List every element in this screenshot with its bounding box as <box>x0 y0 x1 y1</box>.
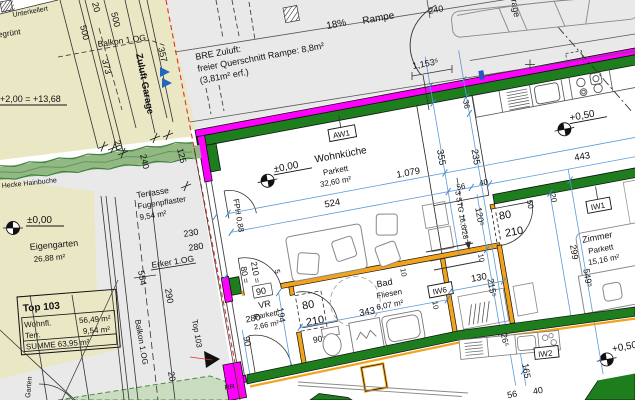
svg-text:±0,00: ±0,00 <box>27 215 52 226</box>
svg-text:10: 10 <box>398 268 408 278</box>
svg-text:56: 56 <box>506 389 518 400</box>
svg-text:20: 20 <box>166 371 178 383</box>
svg-text:IW2: IW2 <box>538 349 554 359</box>
svg-text:80: 80 <box>498 209 512 223</box>
svg-text:90: 90 <box>241 335 253 347</box>
svg-text:80: 80 <box>301 298 315 312</box>
svg-text:90: 90 <box>255 285 267 297</box>
svg-text:+2,00 = +13,68: +2,00 = +13,68 <box>0 94 61 104</box>
svg-text:90: 90 <box>312 333 323 345</box>
svg-text:10: 10 <box>430 300 440 310</box>
svg-text:Terr.: Terr. <box>25 330 41 340</box>
svg-text:40: 40 <box>532 385 544 397</box>
